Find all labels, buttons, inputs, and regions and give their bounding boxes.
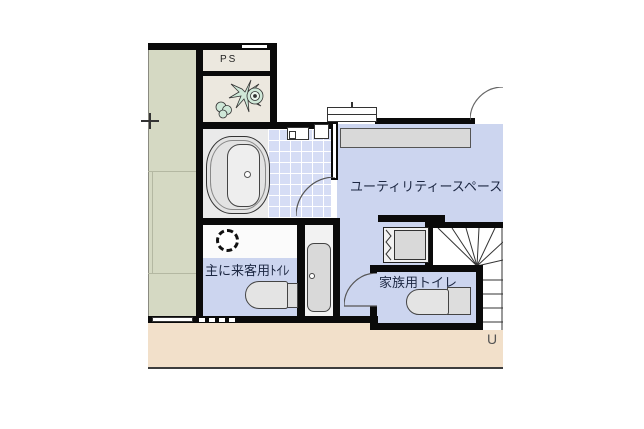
- tatami-mat-line-h2: [148, 273, 196, 274]
- window-utility-tick: [351, 102, 353, 108]
- stairs-up-label: U: [487, 331, 497, 347]
- utility-space-label: ユーティリティースペース: [350, 176, 502, 195]
- wall-guest-nook: [297, 225, 305, 323]
- tatami-mat-line-h1: [148, 171, 196, 172]
- washer-drain-zigzag-icon: [384, 228, 394, 262]
- shower-control-knob-icon: [289, 131, 296, 139]
- utility-entry-door-arc-icon: [470, 87, 504, 121]
- pipe-space-label: PS: [220, 54, 237, 65]
- threshold-dash-1: [199, 318, 205, 322]
- wall-utility-top: [375, 118, 475, 124]
- utility-counter: [340, 128, 471, 148]
- corridor-edge-line: [148, 367, 503, 369]
- threshold-dash-3: [219, 318, 225, 322]
- window-left-tick-v: [149, 113, 151, 129]
- wall-left-main: [196, 43, 203, 323]
- window-utility-mullion: [328, 114, 376, 115]
- tatami-mat-line-v: [152, 171, 153, 273]
- window-top-wall: [242, 45, 267, 48]
- wall-ps-right: [270, 43, 277, 123]
- wall-washer-top: [378, 215, 445, 222]
- threshold-dash-4: [229, 318, 235, 322]
- bathtub-drain-icon: [244, 171, 251, 178]
- guest-toilet-label: 主に来客用ﾄｲﾚ: [205, 260, 290, 279]
- washing-machine: [394, 230, 426, 260]
- floor-plan: PS ユーティリティースペース 主に来客用ﾄｲﾚ 家族用トイレ U: [0, 0, 644, 429]
- tatami-room: [148, 50, 197, 317]
- plant-icons: [203, 76, 270, 122]
- wall-stairs-top: [425, 222, 503, 228]
- threshold-dash-2: [209, 318, 215, 322]
- bathroom-door-arc-icon: [296, 177, 335, 216]
- family-toilet-tank: [447, 287, 471, 315]
- window-bath-right: [331, 122, 338, 180]
- window-bottom-wall: [152, 317, 193, 322]
- family-toilet-bowl: [406, 289, 449, 315]
- wall-nook-right: [333, 225, 340, 323]
- shower-basin-icon: [314, 124, 329, 139]
- family-toilet-label: 家族用トイレ: [379, 272, 457, 291]
- guest-toilet-bowl: [245, 281, 288, 309]
- guest-sink-icon: [216, 229, 239, 252]
- family-toilet-door-arc-icon: [344, 273, 378, 307]
- nook-door-handle-icon: [309, 273, 315, 279]
- wall-bath-bottom: [196, 218, 340, 225]
